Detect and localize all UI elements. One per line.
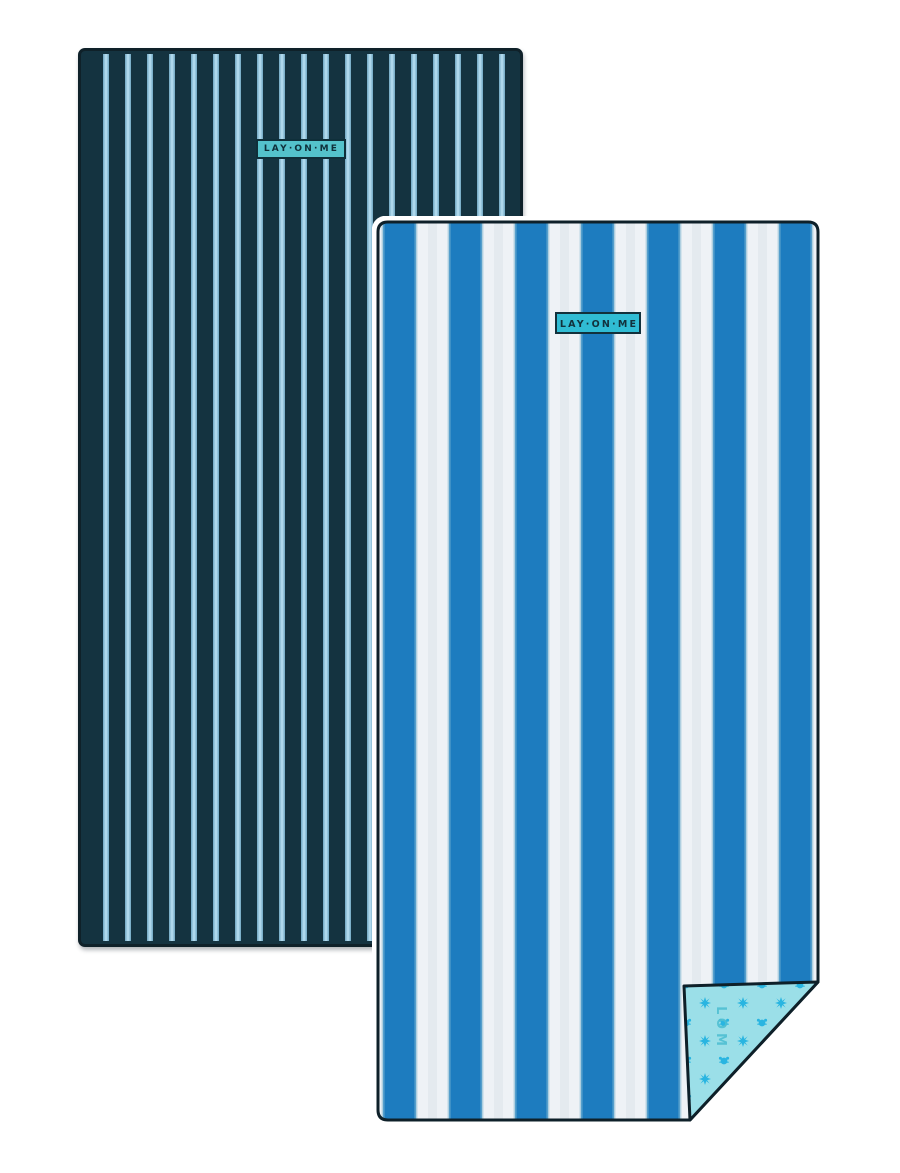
brand-label-right: LAY·ON·ME: [560, 319, 638, 330]
brand-label-left: LAY·ON·ME: [256, 139, 346, 159]
folded-corner-flap: [684, 982, 818, 1120]
towel-blue-cabana: LOM LAY·ON·ME: [372, 216, 832, 1136]
fold-monogram: LOM: [713, 1006, 728, 1050]
product-image-canvas: LAY·ON·ME: [0, 0, 900, 1173]
